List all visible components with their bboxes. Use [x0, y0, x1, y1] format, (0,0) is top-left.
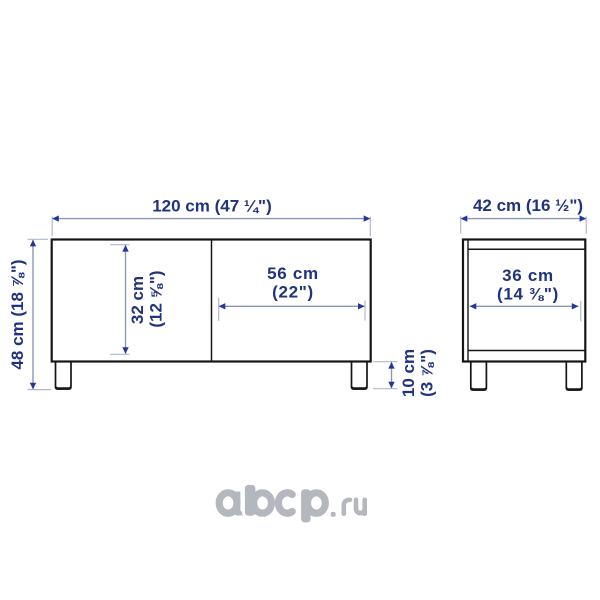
svg-text:48 cm (18 ⅞"): 48 cm (18 ⅞")	[8, 259, 27, 369]
svg-text:10 cm: 10 cm	[399, 349, 418, 397]
svg-text:42 cm (16 ½"): 42 cm (16 ½")	[473, 196, 583, 215]
svg-text:36 cm: 36 cm	[502, 266, 554, 285]
svg-text:(14 ⅜"): (14 ⅜")	[497, 285, 559, 304]
svg-text:56 cm: 56 cm	[267, 264, 319, 283]
svg-text:(3 ⅞"): (3 ⅞")	[418, 349, 437, 397]
svg-text:(12 ⅝"): (12 ⅝")	[147, 270, 166, 327]
svg-text:32 cm: 32 cm	[128, 276, 147, 324]
svg-text:(22"): (22")	[272, 283, 314, 302]
svg-text:120 cm (47 ¼"): 120 cm (47 ¼")	[152, 197, 272, 216]
